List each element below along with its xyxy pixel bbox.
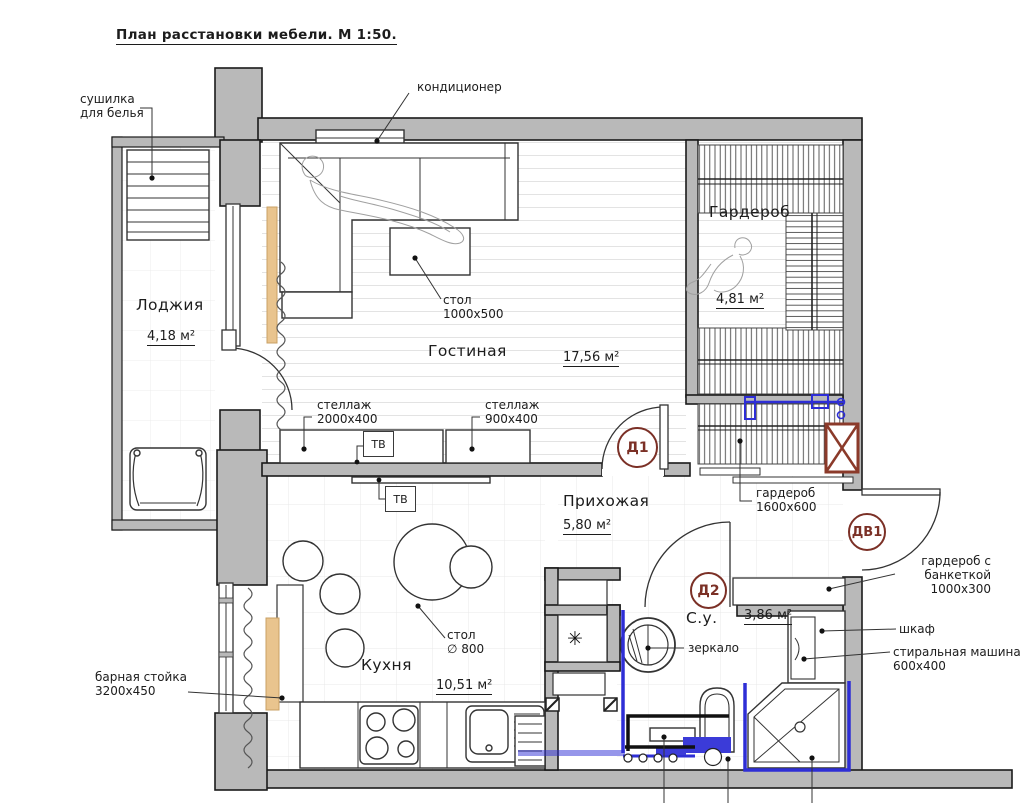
drying-rack xyxy=(127,150,209,240)
chair xyxy=(326,629,364,667)
counter-end xyxy=(515,716,545,766)
shelf1-label: стеллаж 2000х400 xyxy=(317,398,378,426)
cabinet-label: шкаф xyxy=(899,622,935,636)
mirror-label: зеркало xyxy=(688,641,739,655)
radiator-living xyxy=(267,207,277,343)
anchors xyxy=(546,698,617,711)
room-wardrobe-area: 4,81 м² xyxy=(716,293,764,309)
entry-wardrobe-label: гардероб с банкеткой 1000х300 xyxy=(895,554,991,596)
tv-label-kitchen: ТВ xyxy=(385,486,416,512)
bar-counter xyxy=(277,585,303,702)
room-hallway-name: Прихожая xyxy=(563,494,649,508)
chair xyxy=(450,546,492,588)
washbasin-mirror xyxy=(621,618,675,672)
entry-bench xyxy=(733,578,845,605)
shelving-900 xyxy=(446,430,530,463)
room-hallway-area: 5,80 м² xyxy=(563,519,611,535)
room-living-area: 17,56 м² xyxy=(563,351,619,367)
cabinet-washer xyxy=(788,611,845,683)
vent-box xyxy=(826,424,858,472)
dryer-label: сушилка для белья xyxy=(80,92,144,120)
tv-console xyxy=(352,477,490,483)
loggia-chair xyxy=(130,448,206,510)
floor-plan: План расстановки мебели. М 1:50. сушилка… xyxy=(0,0,1024,803)
kitchen-table-label: стол ∅ 800 xyxy=(447,628,484,656)
ac-label: кондиционер xyxy=(417,80,502,94)
room-bathroom-area: 3,86 м² xyxy=(744,609,792,625)
door-tag-d1: Д1 xyxy=(617,427,658,468)
room-loggia-name: Лоджия xyxy=(136,298,204,312)
coffee-table xyxy=(390,228,470,275)
bar-wood xyxy=(266,618,279,710)
coffee-table-label: стол 1000х500 xyxy=(443,293,504,321)
tv-label-living: ТВ xyxy=(363,431,394,457)
fan-symbol: ✳ xyxy=(567,628,583,650)
room-bathroom-name: С.у. xyxy=(686,611,717,625)
door-tag-dv1: ДВ1 xyxy=(848,513,886,551)
shelf2-label: стеллаж 900х400 xyxy=(485,398,539,426)
kitchen-counter xyxy=(300,702,545,768)
washer-label: стиральная машина 600х400 xyxy=(893,645,1021,673)
room-kitchen-area: 10,51 м² xyxy=(436,679,492,695)
room-kitchen-name: Кухня xyxy=(361,658,412,672)
room-loggia-area: 4,18 м² xyxy=(147,330,195,346)
room-wardrobe-name: Гардероб xyxy=(709,205,790,219)
door-tag-d2: Д2 xyxy=(690,572,727,609)
plan-title: План расстановки мебели. М 1:50. xyxy=(116,28,397,45)
chair xyxy=(320,574,360,614)
chair xyxy=(283,541,323,581)
bar-label: барная стойка 3200х450 xyxy=(95,670,187,698)
room-living-name: Гостиная xyxy=(428,344,507,358)
hall-wardrobe-label: гардероб 1600х600 xyxy=(756,486,817,514)
